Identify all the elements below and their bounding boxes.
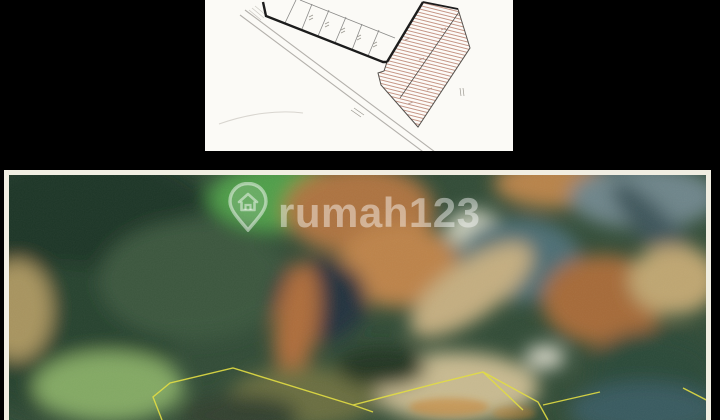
faint-contour-line: [219, 112, 303, 124]
parcel-lines: [285, 0, 395, 56]
photo-frame: [4, 170, 711, 420]
site-plan-drawing: [205, 0, 513, 151]
property-listing-image: rumah123: [0, 0, 720, 420]
survey-land-polygon: [378, 2, 470, 127]
satellite-photo: [9, 175, 706, 420]
site-plan-panel: [205, 0, 513, 151]
satellite-photo-art: [9, 175, 706, 420]
photo-grain: [9, 175, 706, 420]
